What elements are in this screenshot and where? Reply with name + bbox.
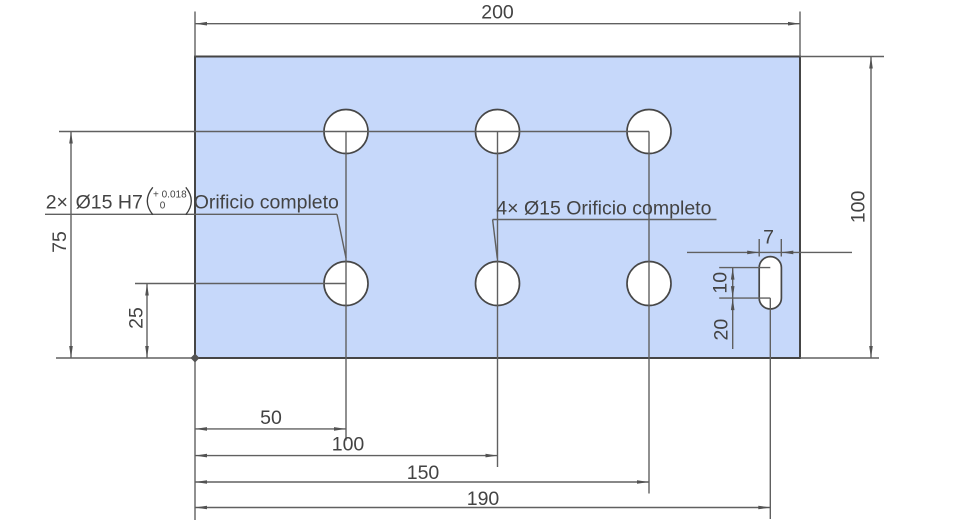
svg-text:190: 190 <box>467 488 500 510</box>
svg-text:10: 10 <box>709 272 731 294</box>
svg-text:200: 200 <box>481 2 514 24</box>
svg-text:25: 25 <box>125 307 147 329</box>
svg-text:7: 7 <box>763 227 774 249</box>
svg-text:50: 50 <box>260 407 282 429</box>
svg-text:150: 150 <box>407 462 440 484</box>
svg-text:100: 100 <box>847 190 869 223</box>
svg-text:Ø15 H7: Ø15 H7 <box>76 192 143 214</box>
svg-text:75: 75 <box>49 231 71 253</box>
svg-text:0: 0 <box>160 201 166 212</box>
svg-text:4× Ø15 Orificio completo: 4× Ø15 Orificio completo <box>496 197 711 219</box>
svg-text:Orificio completo: Orificio completo <box>194 192 339 214</box>
svg-text:2×: 2× <box>46 192 68 214</box>
svg-text:+ 0.018: + 0.018 <box>153 190 187 201</box>
svg-text:20: 20 <box>710 319 732 341</box>
svg-text:100: 100 <box>332 434 365 456</box>
